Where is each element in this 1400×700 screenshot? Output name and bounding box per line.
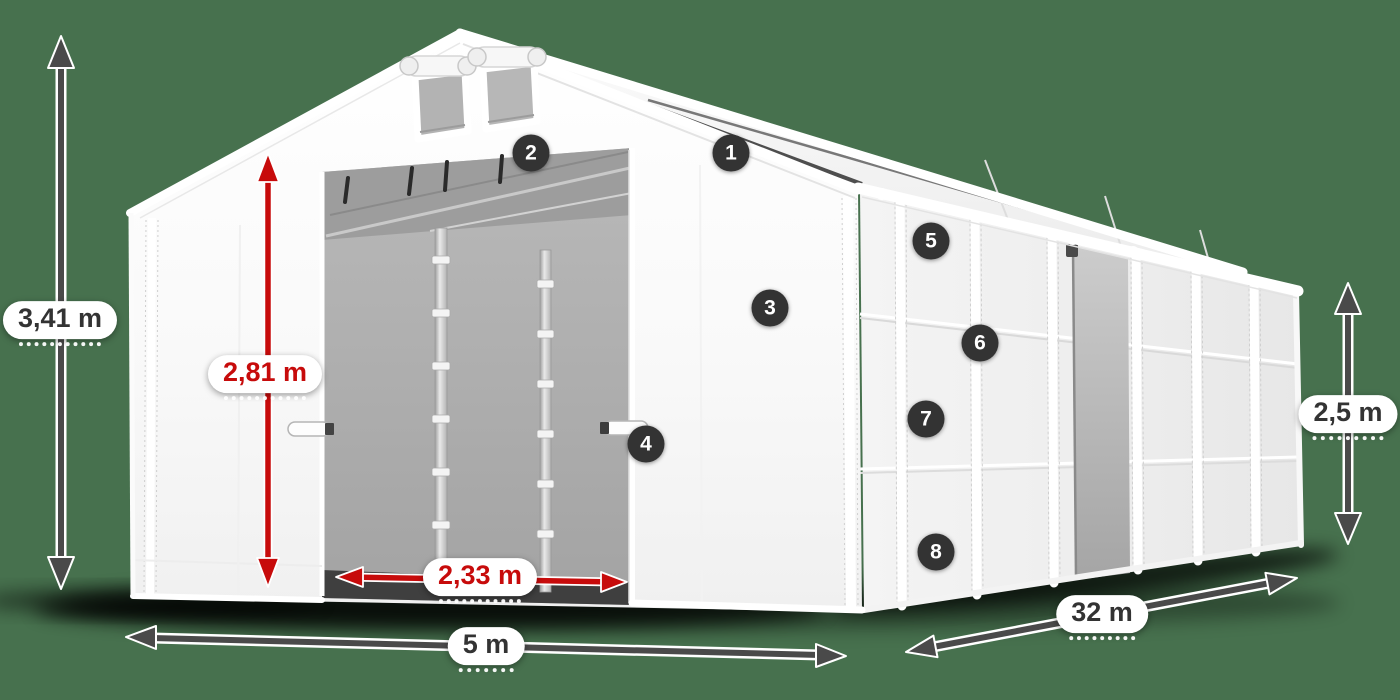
callout-marker-8[interactable]: 8: [918, 534, 955, 571]
total-height-label: 3,41 m: [3, 301, 117, 339]
front-door-opening: [322, 148, 632, 605]
callout-marker-5[interactable]: 5: [913, 223, 950, 260]
callout-marker-1[interactable]: 1: [713, 135, 750, 172]
callout-marker-4[interactable]: 4: [628, 426, 665, 463]
callout-marker-2[interactable]: 2: [513, 135, 550, 172]
callout-marker-3[interactable]: 3: [752, 290, 789, 327]
side-entrance-opening: [1072, 246, 1130, 580]
door-width-label: 2,33 m: [423, 558, 537, 596]
left-door-handle: [288, 422, 334, 436]
callout-marker-6[interactable]: 6: [962, 325, 999, 362]
side-height-label: 2,5 m: [1298, 395, 1397, 433]
clear-height-label: 2,81 m: [208, 355, 322, 393]
tent-diagram-stage: 3,41 m 2,81 m 2,33 m 5 m 32 m 2,5 m 1 2 …: [0, 0, 1400, 700]
front-width-label: 5 m: [448, 627, 525, 665]
callout-marker-7[interactable]: 7: [908, 401, 945, 438]
tent-illustration: [0, 0, 1400, 700]
length-label: 32 m: [1056, 595, 1148, 633]
